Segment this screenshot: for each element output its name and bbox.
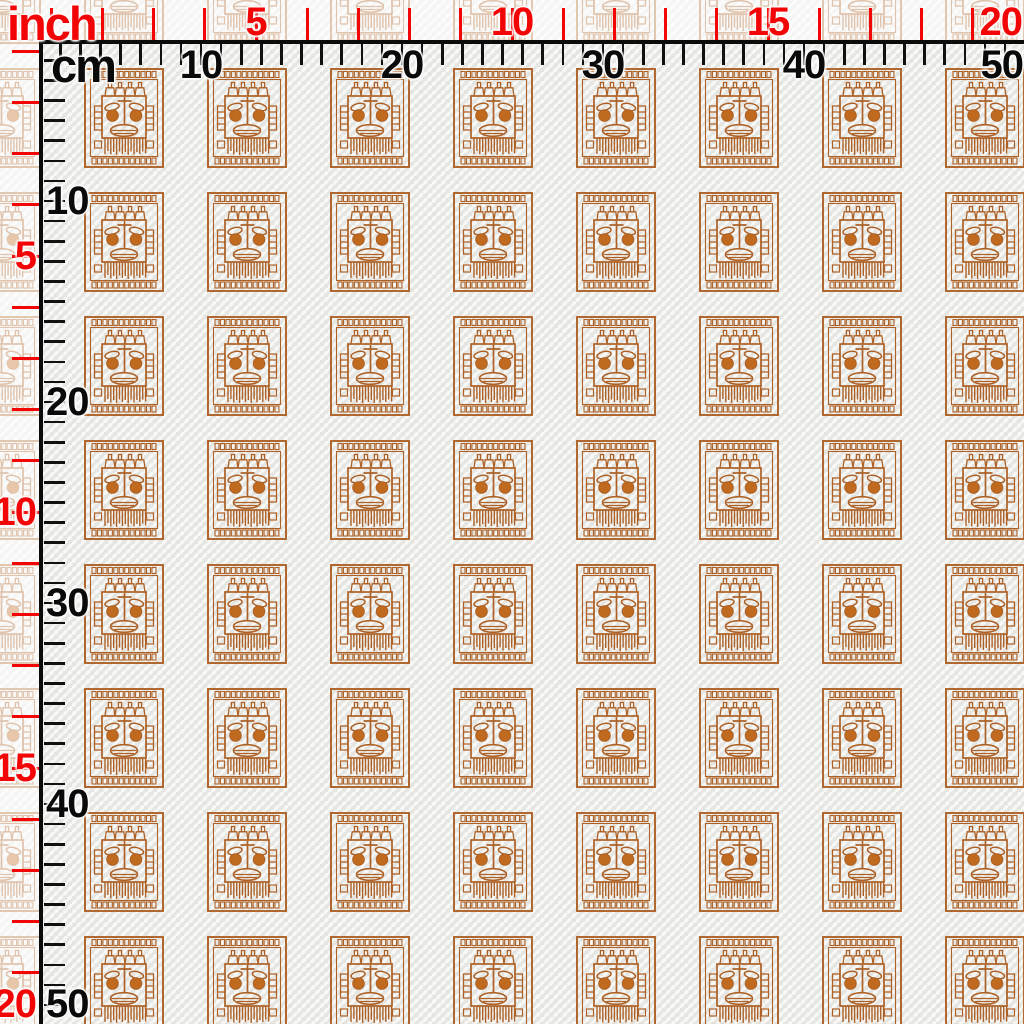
cm-tick-left: [44, 461, 65, 464]
cm-tick-left: [44, 863, 65, 866]
cm-tick-top: [501, 44, 504, 65]
inch-tick-top: [357, 8, 360, 41]
cm-tick-left: [44, 481, 65, 484]
cm-tick-left: [44, 521, 65, 524]
cm-tick-top: [863, 44, 866, 65]
cm-tick-left: [44, 964, 65, 967]
inch-tick-left: [12, 152, 39, 155]
cm-tick-top: [441, 44, 444, 65]
cm-tick-left: [44, 903, 65, 906]
cm-tick-left: [44, 441, 65, 444]
inch-tick-top: [408, 8, 411, 41]
cm-tick-left: [44, 843, 65, 846]
inch-tick-left: [12, 357, 39, 360]
cm-tick-left: [44, 260, 65, 263]
cm-tick-left: [44, 702, 65, 705]
cm-tick-left: [44, 501, 65, 504]
inch-tick-top: [203, 8, 206, 41]
inch-tick-left: [12, 459, 39, 462]
inch-tick-top: [101, 8, 104, 41]
fabric-swatch: inch cm 51015201020304050510152010203040…: [0, 0, 1024, 1024]
inch-tick-left: [12, 664, 39, 667]
inch-ruler-number: 10: [491, 2, 534, 42]
inch-tick-top: [664, 8, 667, 41]
inch-tick-left: [12, 306, 39, 309]
cm-ruler-number: 30: [582, 45, 625, 85]
cm-tick-top: [240, 44, 243, 65]
cm-tick-top: [763, 44, 766, 65]
inch-tick-top: [459, 8, 462, 41]
inch-tick-left: [12, 715, 39, 718]
cm-tick-top: [702, 44, 705, 65]
inch-tick-top: [715, 8, 718, 41]
cm-tick-left: [44, 340, 65, 343]
cm-tick-top: [562, 44, 565, 65]
inch-tick-left: [12, 562, 39, 565]
cm-tick-left: [44, 682, 65, 685]
cm-ruler-number: 40: [783, 45, 826, 85]
cm-ruler-number: 10: [46, 181, 89, 221]
cm-tick-top: [361, 44, 364, 65]
inch-tick-left: [12, 408, 39, 411]
cm-ruler-number: 50: [46, 984, 89, 1024]
cm-tick-left: [44, 320, 65, 323]
cm-ruler-number: 20: [46, 382, 89, 422]
mask-stamp-grid: [0, 0, 1024, 1024]
cm-tick-left: [44, 541, 65, 544]
cm-tick-left: [44, 99, 65, 102]
cm-tick-left: [44, 742, 65, 745]
cm-tick-top: [642, 44, 645, 65]
cm-tick-top: [119, 44, 122, 65]
cm-tick-top: [461, 44, 464, 65]
inch-tick-left: [12, 613, 39, 616]
inch-tick-top: [306, 8, 309, 41]
cm-tick-top: [280, 44, 283, 65]
inch-tick-left: [12, 101, 39, 104]
inch-tick-left: [12, 971, 39, 974]
cm-tick-top: [964, 44, 967, 65]
inch-ruler-number: 5: [245, 2, 266, 42]
cm-tick-top: [742, 44, 745, 65]
inch-tick-left: [12, 920, 39, 923]
cm-ruler-number: 30: [46, 583, 89, 623]
cm-tick-top: [883, 44, 886, 65]
cm-ruler-number: 20: [381, 45, 424, 85]
cm-tick-top: [260, 44, 263, 65]
cm-tick-top: [943, 44, 946, 65]
cm-tick-top: [160, 44, 163, 65]
cm-tick-left: [44, 642, 65, 645]
inch-ruler-number: 15: [0, 748, 36, 788]
inch-tick-left: [12, 869, 39, 872]
cm-tick-left: [44, 662, 65, 665]
inch-tick-top: [920, 8, 923, 41]
cm-tick-left: [44, 280, 65, 283]
inch-tick-top: [562, 8, 565, 41]
fabric-pattern-layer: [0, 0, 1024, 1024]
inch-tick-left: [12, 818, 39, 821]
cm-tick-top: [481, 44, 484, 65]
inch-tick-left: [12, 203, 39, 206]
cm-tick-left: [44, 562, 65, 565]
cm-tick-top: [300, 44, 303, 65]
cm-tick-left: [44, 763, 65, 766]
cm-ruler-number: 40: [46, 784, 89, 824]
cm-tick-left: [44, 240, 65, 243]
cm-tick-top: [843, 44, 846, 65]
cm-tick-top: [521, 44, 524, 65]
cm-ruler-number: 50: [981, 45, 1024, 85]
inch-ruler-number: 5: [15, 236, 36, 276]
cm-tick-top: [722, 44, 725, 65]
cm-tick-top: [541, 44, 544, 65]
inch-tick-left: [12, 50, 39, 53]
cm-tick-top: [682, 44, 685, 65]
cm-tick-left: [44, 139, 65, 142]
cm-unit-label: cm: [51, 42, 115, 89]
inch-ruler-number: 15: [747, 2, 790, 42]
cm-tick-top: [903, 44, 906, 65]
cm-tick-top: [340, 44, 343, 65]
cm-tick-left: [44, 722, 65, 725]
cm-ruler-number: 10: [180, 45, 223, 85]
cm-tick-left: [44, 923, 65, 926]
inch-tick-top: [869, 8, 872, 41]
cm-tick-left: [44, 160, 65, 163]
cm-tick-top: [923, 44, 926, 65]
inch-tick-top: [152, 8, 155, 41]
cm-tick-top: [320, 44, 323, 65]
cm-tick-left: [44, 300, 65, 303]
cm-tick-left: [44, 361, 65, 364]
cm-tick-left: [44, 119, 65, 122]
cm-ruler-vertical-baseline: [39, 40, 43, 1024]
inch-tick-top: [971, 8, 974, 41]
cm-tick-left: [44, 943, 65, 946]
inch-tick-top: [818, 8, 821, 41]
inch-ruler-number: 20: [980, 2, 1023, 42]
cm-tick-top: [662, 44, 665, 65]
inch-tick-top: [613, 8, 616, 41]
inch-ruler-number: 10: [0, 492, 36, 532]
cm-tick-top: [139, 44, 142, 65]
cm-tick-left: [44, 883, 65, 886]
inch-ruler-number: 20: [0, 984, 36, 1024]
